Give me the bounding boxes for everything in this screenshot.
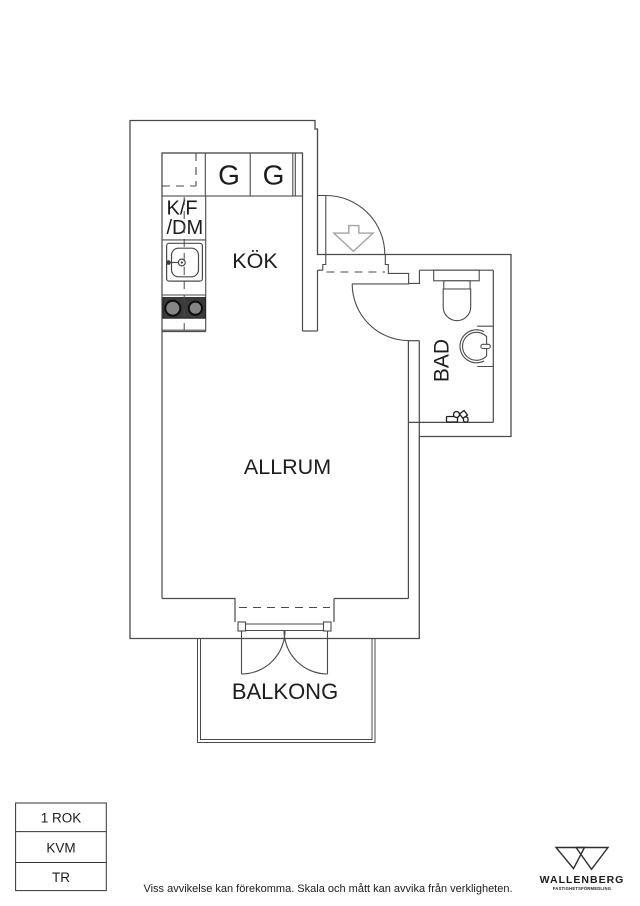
- svg-text:KVM: KVM: [46, 841, 75, 856]
- svg-text:WALLENBERG: WALLENBERG: [540, 874, 625, 886]
- svg-text:FASTIGHETSFÖRMEDLING: FASTIGHETSFÖRMEDLING: [553, 886, 611, 891]
- svg-text:G: G: [263, 160, 285, 191]
- svg-text:ALLRUM: ALLRUM: [244, 455, 331, 479]
- svg-text:BAD: BAD: [431, 339, 454, 382]
- svg-text:KÖK: KÖK: [232, 249, 278, 273]
- svg-text:BALKONG: BALKONG: [232, 679, 338, 704]
- svg-text:Viss avvikelse kan förekomma.: Viss avvikelse kan förekomma. Skala och …: [143, 883, 512, 895]
- svg-text:TR: TR: [52, 870, 70, 885]
- svg-text:/DM: /DM: [167, 217, 204, 239]
- svg-text:1 ROK: 1 ROK: [41, 811, 82, 826]
- svg-text:G: G: [218, 160, 240, 191]
